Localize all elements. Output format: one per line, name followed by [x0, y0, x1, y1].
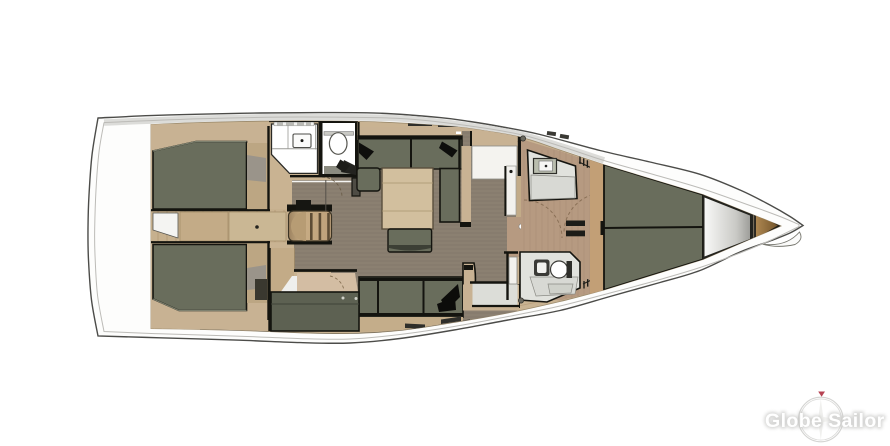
svg-text:Globe Sailor: Globe Sailor: [765, 410, 885, 432]
